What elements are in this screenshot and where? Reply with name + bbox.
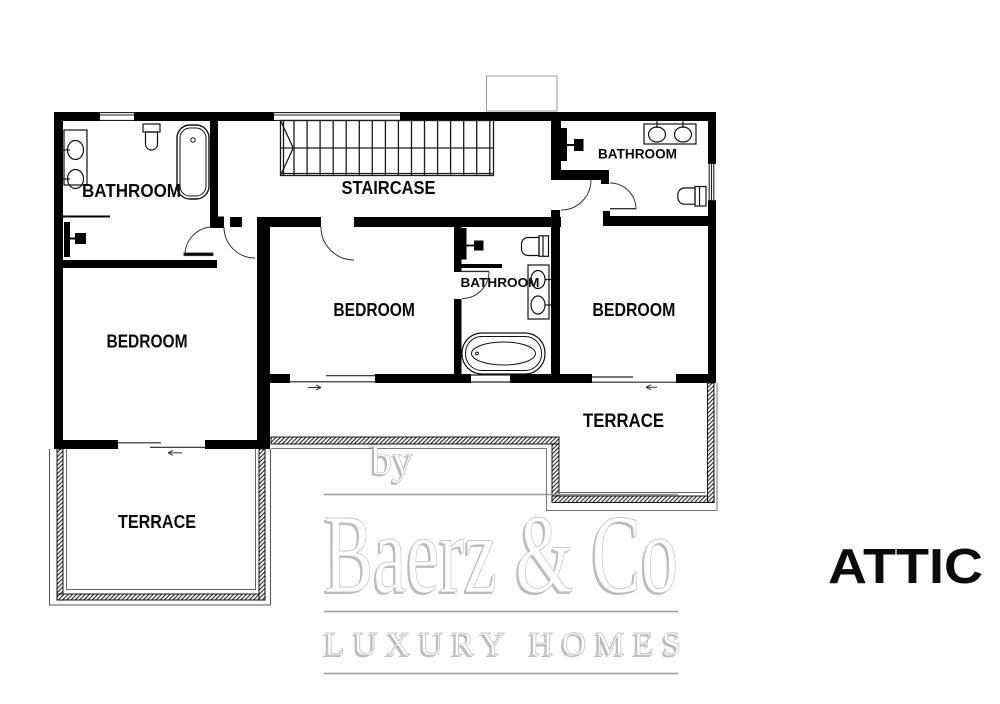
- svg-text:ATTIC: ATTIC: [828, 540, 983, 594]
- svg-text:TERRACE: TERRACE: [583, 411, 664, 432]
- svg-text:BATHROOM: BATHROOM: [598, 147, 677, 162]
- svg-text:BEDROOM: BEDROOM: [107, 332, 188, 352]
- svg-text:BEDROOM: BEDROOM: [592, 300, 675, 320]
- svg-text:by: by: [371, 438, 413, 484]
- svg-text:BEDROOM: BEDROOM: [333, 300, 415, 320]
- svg-text:TERRACE: TERRACE: [118, 511, 196, 532]
- svg-text:BATHROOM: BATHROOM: [82, 181, 181, 201]
- svg-text:Baerz & Co: Baerz & Co: [324, 493, 678, 617]
- svg-text:STAIRCASE: STAIRCASE: [342, 178, 436, 198]
- svg-text:BATHROOM: BATHROOM: [461, 275, 540, 290]
